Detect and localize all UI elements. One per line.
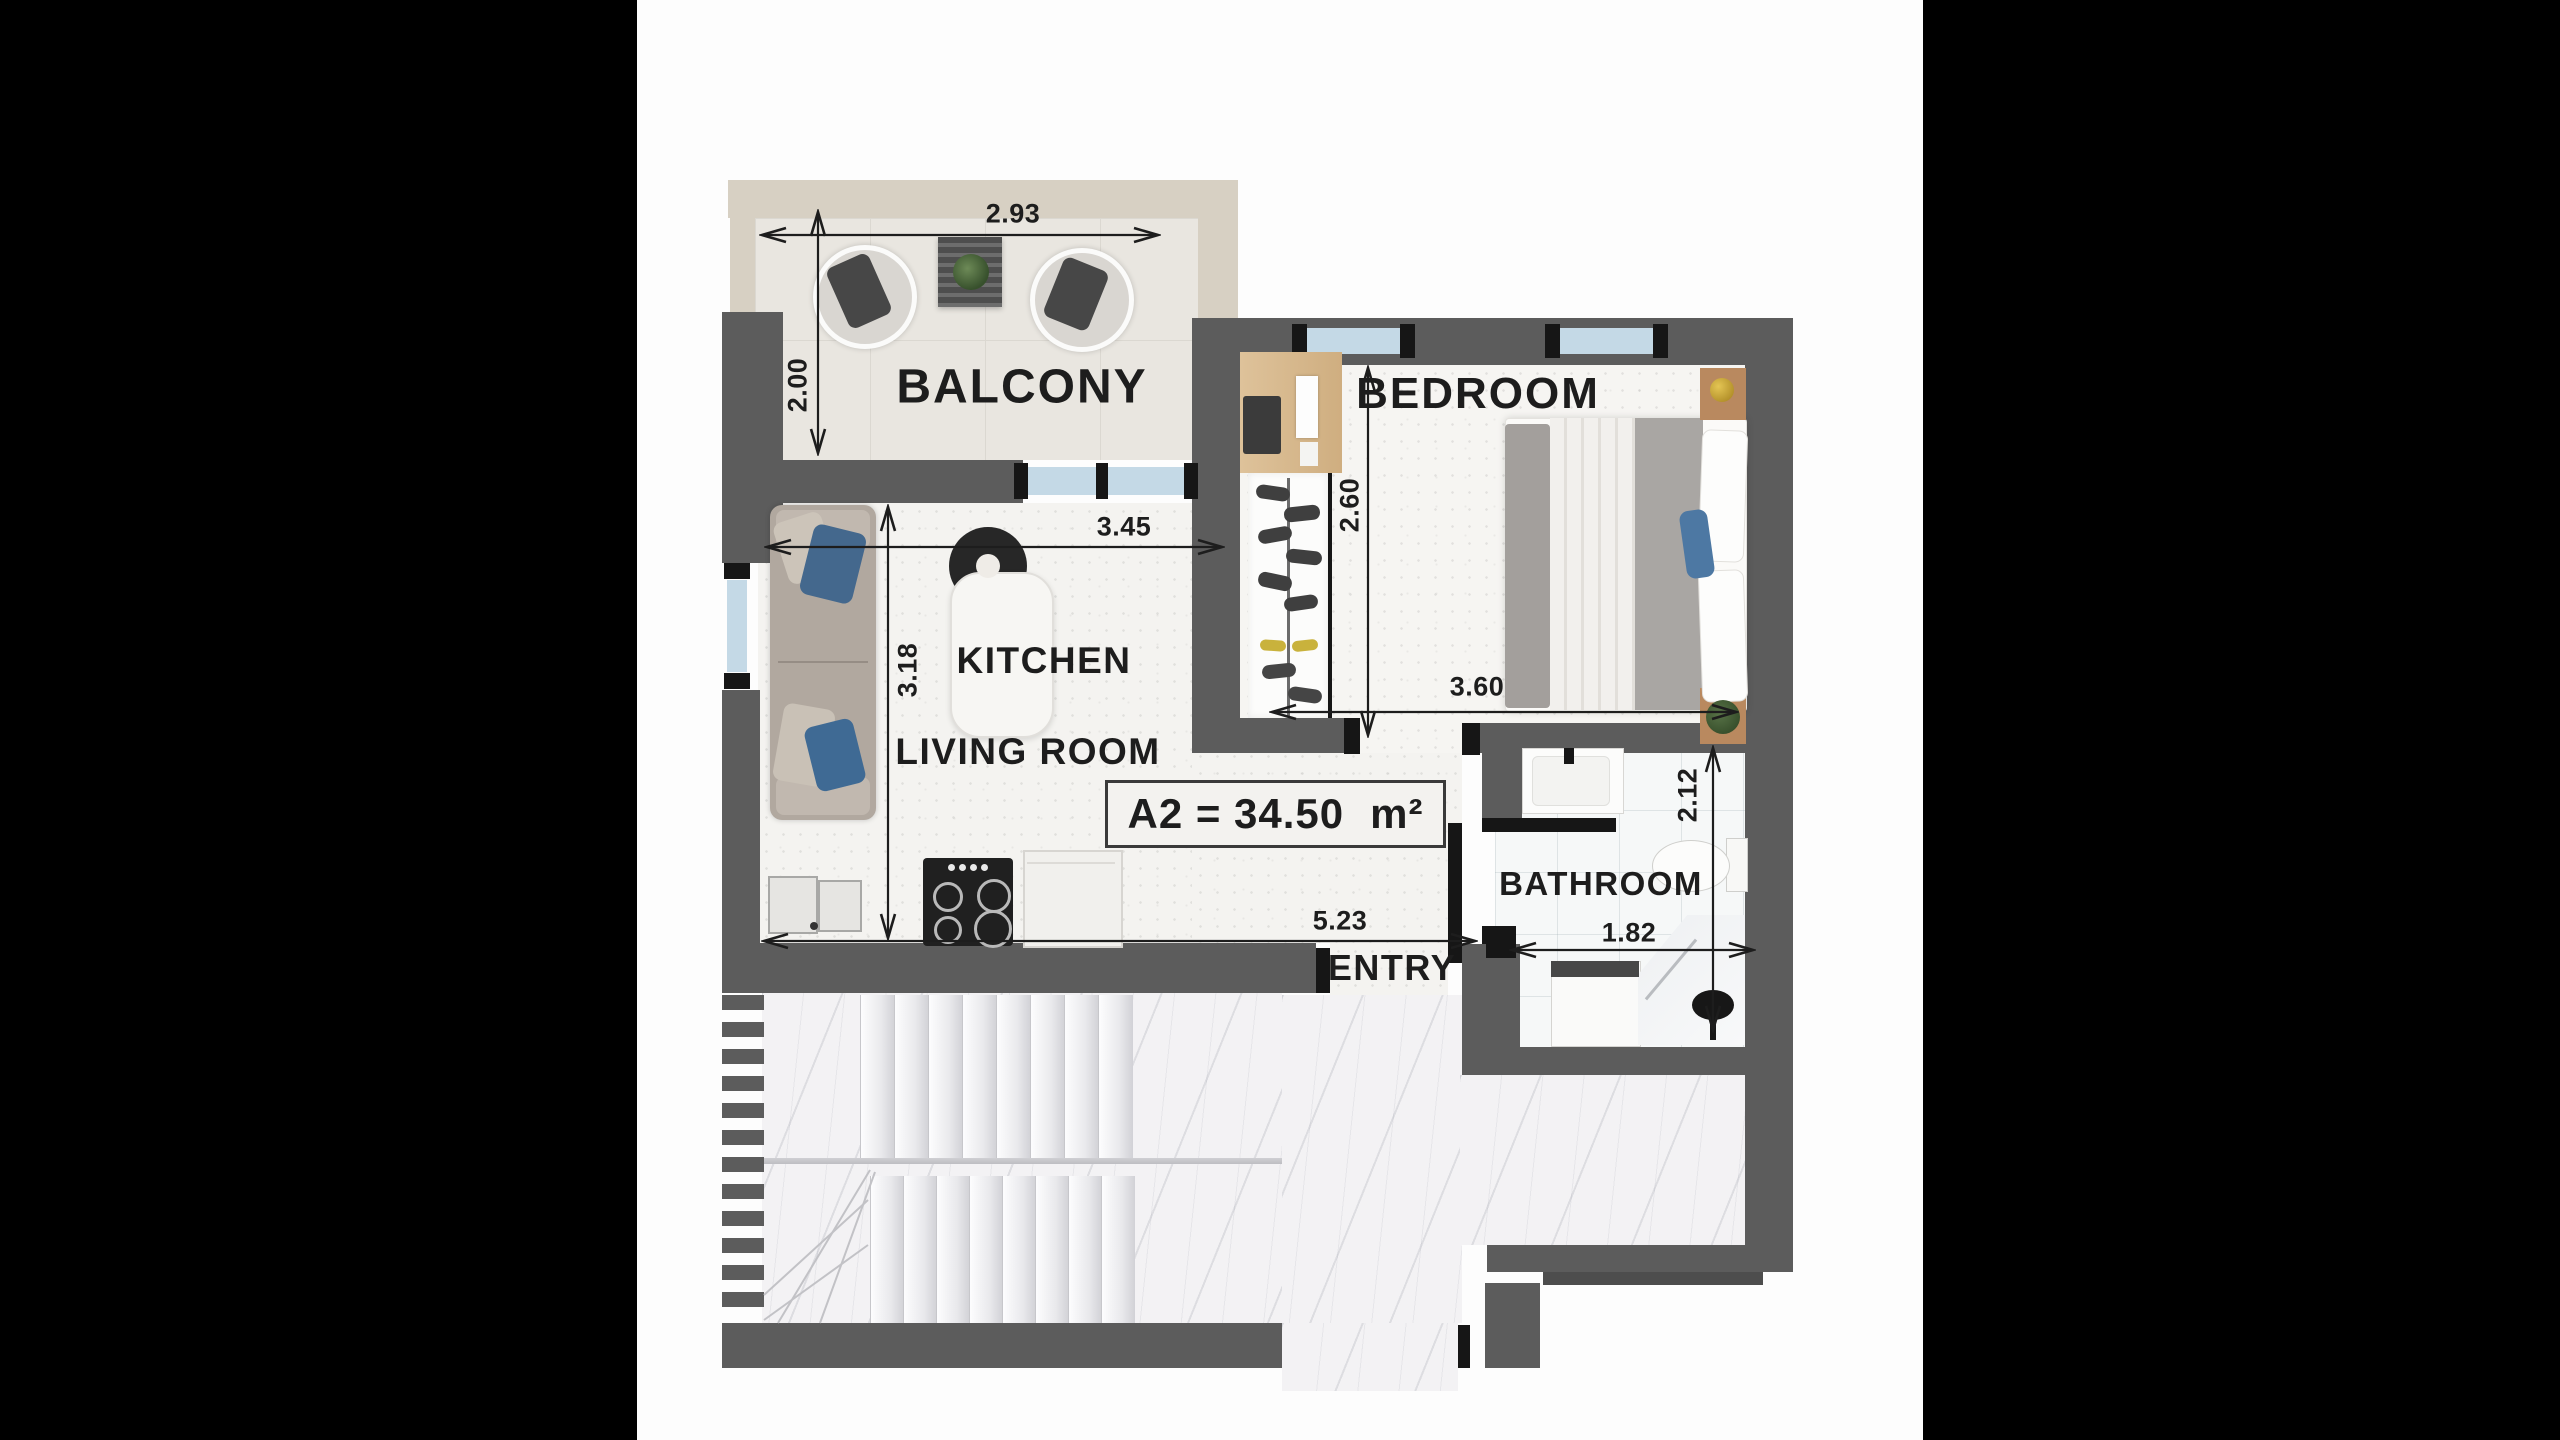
stair-tread — [936, 1176, 970, 1323]
open-door-leaf — [1448, 823, 1462, 963]
room-label-kitchen: KITCHEN — [957, 640, 1132, 682]
stair-hatch-wall — [722, 995, 764, 1010]
stair-tread — [1064, 995, 1099, 1158]
wall-hall-bottom — [1487, 1245, 1793, 1272]
unit-area-value: A2 = 34.50 — [1127, 790, 1344, 838]
stair-tread — [1035, 1176, 1069, 1323]
balcony-parapet-right — [1198, 218, 1238, 318]
living-left-window — [727, 580, 747, 672]
pendant-lamp-center — [976, 554, 1000, 578]
hall-floor-right — [1282, 995, 1462, 1323]
kitchen-counter-line — [1027, 862, 1115, 864]
stove-knob — [981, 864, 988, 871]
stove-knob — [948, 864, 955, 871]
dim-balcony-width: 2.93 — [986, 199, 1041, 230]
dim-bathroom-width: 1.82 — [1602, 918, 1657, 949]
stove-burner — [934, 916, 962, 944]
bedroom-window-1 — [1307, 328, 1400, 354]
bedroom-door-jamb — [1344, 718, 1360, 754]
bedroom-window-2 — [1560, 328, 1653, 354]
stair-landing-divider — [762, 1158, 1282, 1164]
window-cap — [724, 563, 750, 579]
stair-hatch-wall — [722, 1265, 764, 1280]
wall-bathroom-bottom — [1462, 1047, 1752, 1075]
stove-knob — [959, 864, 966, 871]
laptop — [1243, 396, 1281, 454]
stair-tread — [1002, 1176, 1036, 1323]
window-cap — [1400, 324, 1415, 358]
letterbox-left — [0, 0, 637, 1440]
door-frame-tick — [1096, 463, 1108, 499]
shower-drain-stem — [1710, 1018, 1716, 1040]
unit-area-box: A2 = 34.50 m² — [1105, 780, 1446, 848]
bed-blanket-fold — [1505, 424, 1550, 708]
room-label-balcony: BALCONY — [896, 360, 1147, 415]
stair-hatch-wall — [722, 1238, 764, 1253]
stove-burner — [974, 910, 1012, 948]
wall-bathroom-left-upper — [1482, 737, 1522, 825]
hall-door-jamb — [1458, 1325, 1470, 1368]
stair-tread — [928, 995, 963, 1158]
stair-tread — [1068, 1176, 1102, 1323]
kitchen-faucet — [810, 922, 818, 930]
dim-bathroom-depth: 2.12 — [1673, 768, 1704, 823]
desk-papers — [1296, 376, 1318, 438]
bed-pillow — [1698, 569, 1749, 703]
balcony-plant — [953, 254, 989, 290]
balcony-parapet-left — [730, 218, 755, 312]
stove-burner — [933, 882, 963, 912]
shower-drain — [1692, 990, 1734, 1020]
wall-balcony-living-left — [783, 460, 1023, 503]
balcony-sliding-door — [1023, 467, 1195, 495]
stair-tread — [1098, 995, 1133, 1158]
dim-living-depth: 3.18 — [893, 643, 924, 698]
stair-tread — [894, 995, 929, 1158]
stair-hatch-wall — [722, 1211, 764, 1226]
room-label-bathroom: BATHROOM — [1499, 865, 1703, 903]
kitchen-counter — [1023, 850, 1123, 948]
stair-tread — [996, 995, 1031, 1158]
stair-hatch-wall — [722, 1130, 764, 1145]
window-cap — [1545, 324, 1560, 358]
dim-bedroom-width: 3.60 — [1450, 672, 1505, 703]
dim-living-width: 3.45 — [1097, 512, 1152, 543]
sofa-seat-line — [778, 661, 868, 663]
room-label-bedroom: BEDROOM — [1356, 369, 1600, 419]
stove-knob — [970, 864, 977, 871]
table-lamp-gold — [1710, 378, 1734, 402]
potted-plant — [1706, 700, 1740, 734]
dim-bedroom-depth: 2.60 — [1335, 478, 1366, 533]
stair-hatch-wall — [722, 1049, 764, 1064]
unit-area-unit: m² — [1370, 790, 1423, 838]
stair-tread — [969, 1176, 1003, 1323]
stair-tread — [870, 1176, 904, 1323]
stair-hatch-wall — [722, 1022, 764, 1037]
door-frame-tick — [1014, 463, 1028, 499]
bathroom-faucet — [1564, 748, 1574, 764]
room-label-living-room: LIVING ROOM — [895, 731, 1160, 773]
stair-tread — [962, 995, 997, 1158]
shoes-yellow — [1260, 639, 1287, 652]
stair-tread — [1030, 995, 1065, 1158]
stair-hatch-wall — [722, 1103, 764, 1118]
stair-tread — [1101, 1176, 1135, 1323]
kitchen-sink — [818, 880, 862, 932]
door-frame-tick — [1184, 463, 1198, 499]
bed-duvet-band — [1550, 418, 1635, 710]
room-label-entry: ENTRY — [1328, 947, 1456, 989]
hall-floor-bottom — [1460, 1075, 1745, 1245]
wall-living-bottom — [722, 943, 1316, 993]
stair-hatch-wall — [722, 1292, 764, 1307]
dim-entry-span: 5.23 — [1313, 906, 1368, 937]
stair-tread — [860, 995, 895, 1158]
stair-hatch-wall — [722, 1076, 764, 1091]
stair-hatch-wall — [722, 1184, 764, 1199]
bathroom-door-jamb-top — [1462, 723, 1480, 755]
hall-doorway-floor — [1282, 1323, 1458, 1391]
window-cap — [1653, 324, 1668, 358]
wall-bedroom-left — [1192, 318, 1240, 753]
entry-step-block — [1486, 928, 1516, 958]
balcony-parapet-top — [728, 180, 1238, 218]
wall-hall-step — [1543, 1272, 1763, 1285]
floor-plan-page: 2.93 2.00 3.45 3.18 2.60 3.60 2.12 1.82 … — [0, 0, 2560, 1440]
stair-hatch-wall — [722, 1157, 764, 1172]
desk-papers — [1300, 442, 1318, 466]
letterbox-right — [1923, 0, 2560, 1440]
bathroom-half-wall — [1482, 818, 1616, 832]
washing-machine-lid — [1551, 961, 1639, 977]
wall-bedroom-bottom-stub — [1240, 718, 1344, 753]
stair-tread — [903, 1176, 937, 1323]
wall-left-lower — [722, 690, 760, 943]
stove-burner — [977, 879, 1011, 913]
wall-hall-piece — [1485, 1283, 1540, 1368]
wall-exterior-right — [1745, 318, 1793, 1272]
dim-balcony-depth: 2.00 — [783, 358, 814, 413]
wall-stairwell-bottom — [722, 1323, 1282, 1368]
window-cap — [724, 673, 750, 689]
